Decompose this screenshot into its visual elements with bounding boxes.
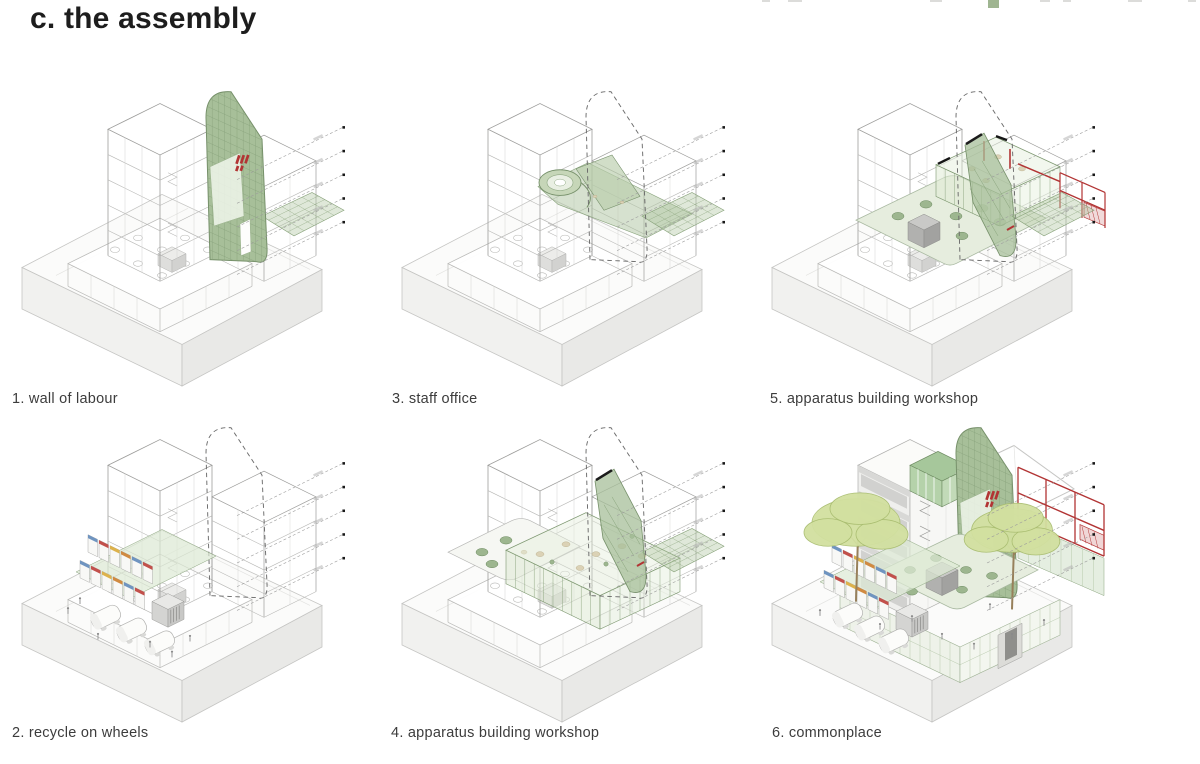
panel-apparatus-workshop-5: 5. apparatus building workshop bbox=[760, 70, 1120, 410]
axon-drawing-1 bbox=[10, 70, 370, 388]
header-remnant bbox=[762, 0, 770, 2]
axon-drawing-3 bbox=[390, 70, 750, 388]
axon-drawing-4 bbox=[390, 406, 750, 724]
panel-caption: 1. wall of labour bbox=[12, 391, 118, 407]
panel-caption: 5. apparatus building workshop bbox=[770, 391, 978, 407]
axon-drawing-6 bbox=[760, 406, 1120, 724]
panel-staff-office: 3. staff office bbox=[390, 70, 750, 410]
header-green-tab bbox=[988, 0, 999, 8]
header-remnant bbox=[930, 0, 942, 2]
panel-caption: 3. staff office bbox=[392, 391, 477, 407]
header-remnant bbox=[1063, 0, 1071, 2]
header-remnant bbox=[1188, 0, 1196, 2]
panel-caption: 2. recycle on wheels bbox=[12, 725, 148, 741]
header-remnant bbox=[1128, 0, 1142, 2]
panel-apparatus-workshop-4: 4. apparatus building workshop bbox=[390, 406, 750, 746]
page-title: c. the assembly bbox=[30, 2, 256, 36]
panel-caption: 6. commonplace bbox=[772, 725, 882, 741]
header-remnant bbox=[788, 0, 802, 2]
axon-drawing-2 bbox=[10, 406, 370, 724]
panel-recycle-on-wheels: 2. recycle on wheels bbox=[10, 406, 370, 746]
axon-drawing-5 bbox=[760, 70, 1120, 388]
panel-caption: 4. apparatus building workshop bbox=[391, 725, 599, 741]
panel-commonplace: 6. commonplace bbox=[760, 406, 1120, 746]
header-remnant bbox=[1040, 0, 1050, 2]
panel-wall-of-labour: 1. wall of labour bbox=[10, 70, 370, 410]
